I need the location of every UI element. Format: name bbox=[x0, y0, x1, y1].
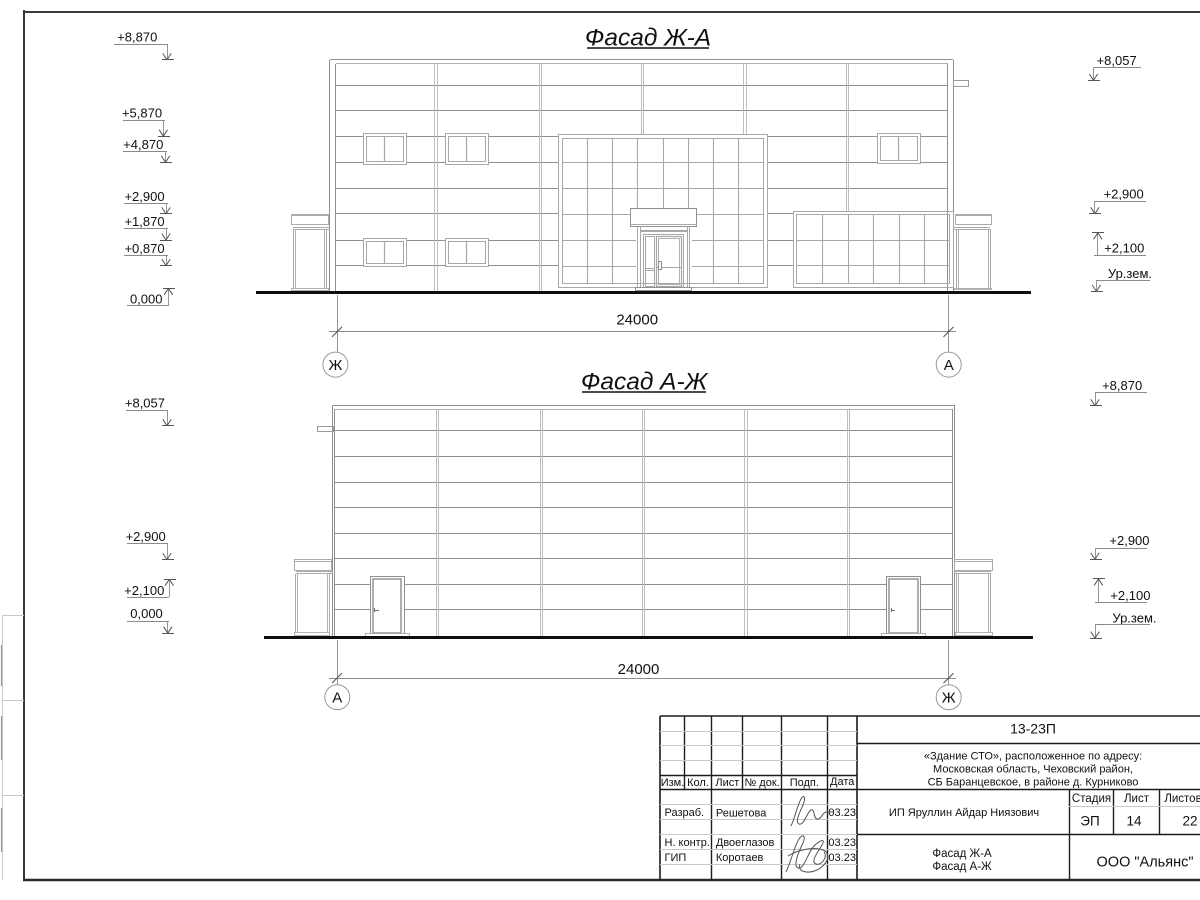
svg-text:Дата: Дата bbox=[830, 776, 855, 788]
svg-text:Кол.: Кол. bbox=[687, 777, 709, 789]
svg-text:+0,870: +0,870 bbox=[124, 241, 164, 256]
svg-text:03.23: 03.23 bbox=[828, 807, 856, 819]
svg-text:+4,870: +4,870 bbox=[123, 137, 163, 152]
svg-text:+8,870: +8,870 bbox=[1102, 378, 1142, 393]
svg-text:Стадия: Стадия bbox=[1072, 793, 1111, 805]
svg-text:Изм.: Изм. bbox=[661, 777, 685, 789]
svg-text:«Здание СТО», расположенное по: «Здание СТО», расположенное по адресу: bbox=[924, 751, 1142, 763]
svg-text:03.23: 03.23 bbox=[828, 852, 856, 864]
svg-text:+2,900: +2,900 bbox=[126, 529, 166, 544]
svg-text:Коротаев: Коротаев bbox=[716, 852, 764, 864]
svg-text:Ур.зем.: Ур.зем. bbox=[1108, 266, 1152, 281]
svg-text:Ур.зем.: Ур.зем. bbox=[1112, 610, 1156, 625]
svg-text:Лист: Лист bbox=[1124, 793, 1150, 805]
svg-text:Листов: Листов bbox=[1164, 793, 1200, 805]
svg-text:А: А bbox=[944, 357, 954, 374]
svg-text:Решетова: Решетова bbox=[716, 807, 767, 819]
svg-text:+8,870: +8,870 bbox=[117, 30, 157, 45]
svg-text:№ док.: № док. bbox=[744, 777, 779, 789]
svg-text:Двоеглазов: Двоеглазов bbox=[716, 837, 775, 849]
svg-text:А: А bbox=[332, 690, 342, 707]
svg-text:Московская область, Чеховский: Московская область, Чеховский район, bbox=[933, 764, 1133, 776]
svg-text:СБ Баранцевское, в районе д. К: СБ Баранцевское, в районе д. Курниково bbox=[928, 776, 1139, 788]
svg-text:ООО "Альянс": ООО "Альянс" bbox=[1097, 854, 1194, 870]
svg-text:+2,900: +2,900 bbox=[1104, 186, 1144, 201]
svg-text:0,000: 0,000 bbox=[130, 606, 163, 621]
svg-text:Фасад А-Ж: Фасад А-Ж bbox=[932, 861, 992, 873]
svg-text:14: 14 bbox=[1126, 814, 1142, 829]
svg-text:+8,057: +8,057 bbox=[125, 396, 165, 411]
svg-text:+2,900: +2,900 bbox=[1109, 533, 1149, 548]
svg-text:+2,100: +2,100 bbox=[124, 583, 164, 598]
svg-text:13-23П: 13-23П bbox=[1010, 721, 1056, 737]
svg-text:+5,870: +5,870 bbox=[122, 106, 162, 121]
svg-text:Разраб.: Разраб. bbox=[665, 807, 705, 819]
svg-text:Лист: Лист bbox=[715, 777, 739, 789]
svg-text:+2,100: +2,100 bbox=[1110, 588, 1150, 603]
svg-text:+2,900: +2,900 bbox=[124, 189, 164, 204]
svg-text:Ж: Ж bbox=[328, 357, 342, 374]
svg-text:24000: 24000 bbox=[616, 312, 658, 329]
svg-text:03.23: 03.23 bbox=[828, 837, 856, 849]
svg-text:Фасад Ж-А: Фасад Ж-А bbox=[932, 848, 992, 860]
svg-text:22: 22 bbox=[1182, 814, 1197, 829]
svg-text:ЭП: ЭП bbox=[1080, 814, 1099, 829]
svg-text:+2,100: +2,100 bbox=[1104, 241, 1144, 256]
svg-text:+1,870: +1,870 bbox=[124, 214, 164, 229]
svg-text:+8,057: +8,057 bbox=[1097, 53, 1137, 68]
svg-text:24000: 24000 bbox=[618, 661, 660, 678]
svg-text:Подп.: Подп. bbox=[790, 777, 819, 789]
svg-text:ИП Яруллин Айдар Ниязович: ИП Яруллин Айдар Ниязович bbox=[889, 807, 1039, 819]
svg-text:0,000: 0,000 bbox=[130, 292, 163, 307]
svg-text:Ж: Ж bbox=[942, 690, 956, 707]
svg-text:Н. контр.: Н. контр. bbox=[665, 837, 710, 849]
svg-text:ГИП: ГИП bbox=[665, 852, 687, 864]
